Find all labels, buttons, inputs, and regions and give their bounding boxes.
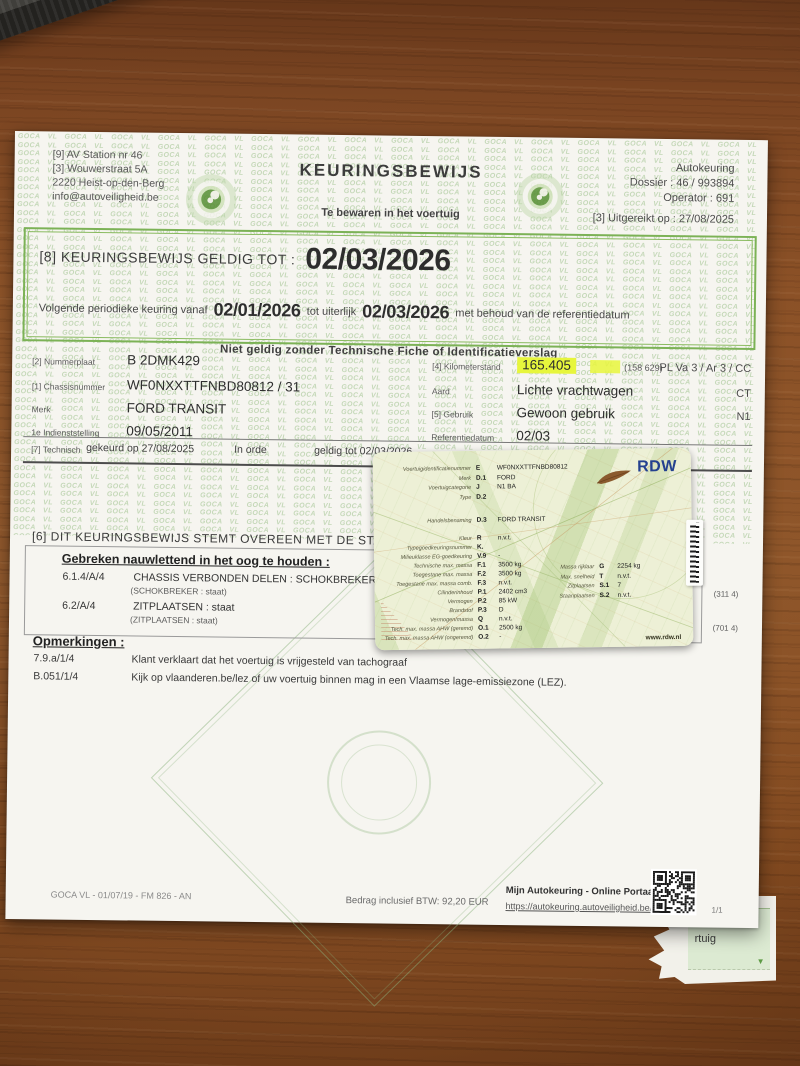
card-field-value: FORD [497, 474, 516, 481]
card-field-label: Vermogen [383, 599, 478, 606]
card-field-value: n.v.t. [498, 579, 512, 586]
goca-eye-logo [184, 172, 239, 227]
card-field-code: J [476, 483, 497, 490]
defect-code: 6.1.4/A/4 [62, 571, 130, 584]
card-field-value: 3500 kg [498, 570, 521, 577]
card-id-rows: Voertuigidentificatienummer E WF0NXXTTFN… [381, 463, 612, 504]
code-ct: CT [736, 388, 751, 400]
operator-number: Operator : 691 [630, 191, 735, 207]
highlight-mark [590, 360, 620, 373]
make-value: FORD TRANSIT [127, 400, 227, 416]
card-field-label: Toegestane max. massa [382, 572, 477, 579]
card-field-label: Tech. max. massa AHW (ongeremd) [383, 635, 478, 642]
card-field-value: 3500 kg [498, 561, 521, 568]
defect-item: 6.1.4/A/4 CHASSIS VERBONDEN DELEN : SCHO… [62, 571, 407, 587]
form-reference: GOCA VL - 01/07/19 - FM 826 - AN [51, 889, 192, 901]
margin-reference: (701 4) [713, 624, 738, 633]
card-field-code: F.1 [477, 561, 498, 568]
remark-text: Klant verklaart dat het voertuig is vrij… [131, 653, 407, 668]
card-field-label: Staanplaatsen [533, 593, 600, 600]
card-field-code: S.1 [599, 582, 617, 589]
card-field-code: K. [477, 543, 498, 550]
card-field-label: Voertuigcategorie [381, 485, 476, 492]
card-field-label: Typegoedkeuringsnummer [382, 545, 477, 552]
field-label: Merk [32, 404, 51, 414]
card-field-value: n.v.t. [499, 615, 513, 622]
license-plate-value: B 2DMK429 [127, 352, 200, 368]
rdw-logo: RDW [637, 458, 677, 477]
issuer-line: info@autoveiligheid.be [52, 189, 164, 204]
card-field-code: D.2 [476, 493, 497, 500]
card-field-code: S.2 [600, 591, 618, 598]
code-n1: N1 [736, 411, 750, 423]
defect-item: 6.2/A/4 ZITPLAATSEN : staat [62, 600, 234, 614]
portal-url-link: https://autokeuring.autoveiligheid.be/ [506, 901, 653, 913]
card-field-label: Cilinderinhoud [383, 590, 478, 597]
card-field-value: - [499, 633, 501, 640]
office-info-block: Autokeuring Dossier : 46 / 993894 Operat… [630, 161, 735, 207]
card-field-label: Max. snelheid [532, 574, 599, 581]
card-field-code: D.1 [476, 474, 497, 481]
card-background: Voertuigidentificatienummer E WF0NXXTTFN… [373, 448, 694, 650]
remarks-heading: Opmerkingen : [33, 633, 125, 649]
card-field-label: Milieuklasse EG-goedkeuring [382, 554, 477, 561]
card-field-label: Vermogen/massa [383, 617, 478, 624]
next-inspection-from-date: 02/01/2026 [213, 299, 300, 321]
next-inspection-line: Volgende periodieke keuring vanaf 02/01/… [39, 297, 630, 325]
card-field-code: F.3 [477, 579, 498, 586]
field-label: [7] Technisch [31, 444, 81, 455]
card-side-rows: Massa rijklaar G 2254 kg Max. snelheid T… [532, 562, 688, 602]
card-field-value: - [498, 552, 500, 559]
validity-box: [8] KEURINGSBEWIJS GELDIG TOT : 02/03/20… [22, 227, 756, 350]
rdw-website: www.rdw.nl [646, 634, 682, 641]
card-field-label: Handelsbenaming [382, 518, 477, 525]
card-field-code: P.2 [478, 597, 499, 604]
torn-fragment-text-2: rtuig [688, 932, 770, 947]
card-field-value: D [499, 606, 504, 613]
rdw-registration-card: Voertuigidentificatienummer E WF0NXXTTFN… [373, 448, 694, 650]
card-field-code: E [476, 464, 497, 471]
card-field-label: Type [381, 494, 476, 501]
defect-subtext: (SCHOKBREKER : staat) [130, 585, 226, 596]
card-field-code: O.1 [478, 624, 499, 631]
margin-reference: (311 4) [714, 590, 739, 599]
down-arrow-icon: ▼ [757, 957, 765, 966]
card-field-label: Brandstof [383, 608, 478, 615]
card-field-code: D.3 [477, 516, 498, 523]
field-label: [5] Gebruik [432, 409, 474, 420]
card-field-code: T [599, 572, 617, 579]
remark-code: B.051/1/4 [33, 670, 128, 683]
validity-label: [8] KEURINGSBEWIJS GELDIG TOT : [39, 248, 295, 267]
issued-date: [3] Uitgereikt op : 27/08/2025 [593, 212, 734, 226]
remark-code: 7.9.a/1/4 [33, 652, 128, 665]
card-field-value: n.v.t. [617, 572, 631, 579]
card-field-code: F.2 [477, 570, 498, 577]
chassis-number-value: WF0NXXTTFNBD80812 / 31 [127, 377, 300, 394]
next-inspection-text: Volgende periodieke keuring vanaf [39, 302, 208, 316]
office-name: Autokeuring [630, 161, 735, 177]
card-field-value: FORD TRANSIT [498, 516, 546, 524]
card-field-label: Toegestane max. massa comb. [382, 581, 477, 588]
laptop-edge [0, 0, 265, 47]
card-field-label: Zitplaatsen [532, 583, 599, 590]
card-field-code: R [477, 534, 498, 541]
amount-incl-vat: Bedrag inclusief BTW: 92,20 EUR [346, 895, 489, 908]
card-field-code: P.3 [478, 606, 499, 613]
card-field-value: 2402 cm3 [499, 588, 528, 595]
defect-text: ZITPLAATSEN : staat [133, 600, 234, 613]
usage-value: Gewoon gebruik [517, 405, 615, 421]
photo-scene: n en rtuig ▼ GOCA VL GOCA VL GOCA VL GOC… [0, 0, 800, 1066]
field-label: Aard [432, 386, 450, 396]
odometer-value: 165.405 [517, 357, 576, 374]
validity-date: 02/03/2026 [305, 243, 451, 279]
inspection-date: gekeurd op 27/08/2025 [86, 442, 194, 455]
card-field-code: O.2 [478, 633, 499, 640]
inspection-result: In orde [234, 444, 267, 456]
dossier-number: Dossier : 46 / 993894 [630, 176, 735, 192]
card-field-value: WF0NXXTTFNBD80812 [497, 464, 568, 472]
card-field-label: Massa rijklaar [532, 564, 599, 571]
odometer-previous-value: (158 629) [624, 362, 663, 372]
page-number: 1/1 [711, 906, 722, 915]
defects-heading: Gebreken nauwlettend in het oog te houde… [62, 552, 330, 569]
field-label: [1] Chassisnummer [32, 381, 105, 392]
card-field-code: Q [478, 615, 499, 622]
category-codes: PL Va 3 / Ar 3 / CC [659, 362, 751, 375]
card-field-label: Merk [381, 475, 476, 482]
defect-subtext: (ZITPLAATSEN : staat) [130, 614, 218, 625]
card-field-value: n.v.t. [498, 534, 512, 541]
qr-code [650, 869, 697, 916]
card-field-code: P.1 [478, 588, 499, 595]
barcode-sticker [686, 520, 703, 586]
card-field-label: Voertuigidentificatienummer [381, 466, 476, 473]
card-field-value: 2254 kg [617, 563, 640, 570]
card-field-code: G [599, 563, 617, 570]
card-field-value: 85 kW [499, 597, 518, 604]
defect-code: 6.2/A/4 [62, 600, 130, 613]
next-inspection-text: tot uiterlijk [307, 305, 357, 318]
portal-title: Mijn Autokeuring - Online Portaal [506, 885, 656, 898]
validity-main-line: [8] KEURINGSBEWIJS GELDIG TOT : 02/03/20… [39, 239, 450, 278]
vehicle-kind-value: Lichte vrachtwagen [517, 382, 634, 398]
next-inspection-until-date: 02/03/2026 [362, 301, 449, 323]
card-field-value: N1 BA [497, 483, 516, 490]
next-inspection-text: met behoud van de referentiedatum [455, 307, 629, 321]
field-label: [4] Kilometerstand [432, 361, 501, 372]
card-field-code: V.9 [477, 552, 498, 559]
card-field-value: n.v.t. [618, 591, 632, 598]
card-field-value: 2500 kg [499, 624, 522, 631]
card-field-label: Technische max. massa [382, 563, 477, 570]
field-label: [2] Nummerplaat [32, 356, 95, 367]
rdw-feather-icon [595, 467, 633, 488]
card-field-label: Kleur [382, 536, 477, 543]
card-field-label: Tech. max. massa AHW (geremd) [383, 626, 478, 633]
defect-text: CHASSIS VERBONDEN DELEN : SCHOKBREKER : … [133, 571, 407, 586]
card-field-value: 7 [617, 582, 621, 589]
